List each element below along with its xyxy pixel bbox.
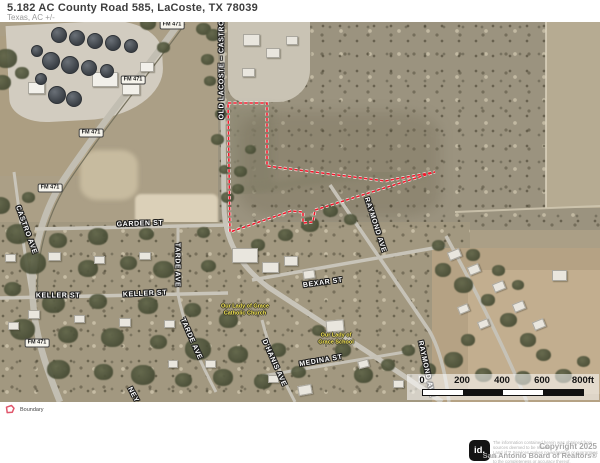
scale-tick-label: 0 xyxy=(419,375,424,386)
boundary-legend-icon xyxy=(4,404,16,415)
scale-tick-label: 600 xyxy=(534,375,550,386)
scale-segment xyxy=(463,390,503,395)
highway-shield: FM 471 xyxy=(38,184,63,193)
street-label: OLD LACOSTE – CASTROV xyxy=(219,22,226,119)
report-page: 5.182 AC County Road 585, LaCoste, TX 78… xyxy=(0,0,600,463)
scale-tick-label: 800ft xyxy=(572,375,594,386)
scale-segments xyxy=(422,389,584,396)
boundary-overlay xyxy=(0,22,600,402)
poi-label: Our Lady of GraceCatholic Church xyxy=(221,303,269,316)
property-boundary xyxy=(228,103,435,232)
copyright-text: Copyright 2025 San Antonio Board of Real… xyxy=(483,442,597,460)
highway-shield: FM 471 xyxy=(121,76,146,85)
scale-segment xyxy=(423,390,463,395)
aerial-map: OLD LACOSTE – CASTROVCASTRO AVEGARDEN ST… xyxy=(0,22,600,402)
scale-bar: 0200400600800ft xyxy=(407,374,599,400)
legend-boundary-label: Boundary xyxy=(20,407,44,413)
scale-tick-label: 400 xyxy=(494,375,510,386)
highway-shield: FM 471 xyxy=(79,129,104,138)
street-label: KELLER ST xyxy=(36,293,80,300)
legend: Boundary xyxy=(4,404,44,415)
page-subtitle: Texas, AC +/- xyxy=(7,13,55,22)
scale-segment xyxy=(543,390,583,395)
poi-label: Our Lady ofGrace School xyxy=(318,332,353,345)
scale-tick-label: 200 xyxy=(454,375,470,386)
copyright-line2: San Antonio Board of Realtors® xyxy=(483,451,597,460)
copyright-line1: Copyright 2025 xyxy=(483,442,597,451)
street-label: TARDE AVE xyxy=(174,243,181,288)
highway-shield: FM 471 xyxy=(25,339,50,348)
highway-shield: FM 471 xyxy=(160,22,185,30)
boundary-halo xyxy=(228,103,435,232)
scale-segment xyxy=(503,390,543,395)
